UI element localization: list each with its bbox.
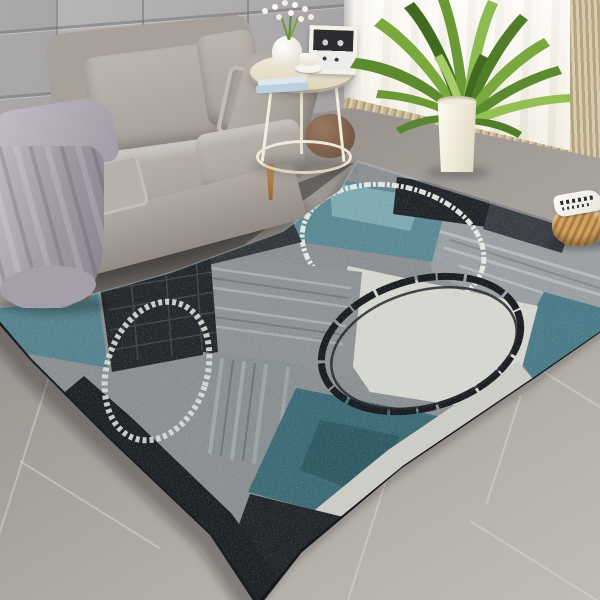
floor-vase-rim	[438, 96, 476, 105]
small-vase	[272, 36, 302, 68]
living-room-photo	[0, 0, 600, 600]
white-flowers	[262, 8, 268, 14]
floor-vase	[434, 100, 480, 172]
